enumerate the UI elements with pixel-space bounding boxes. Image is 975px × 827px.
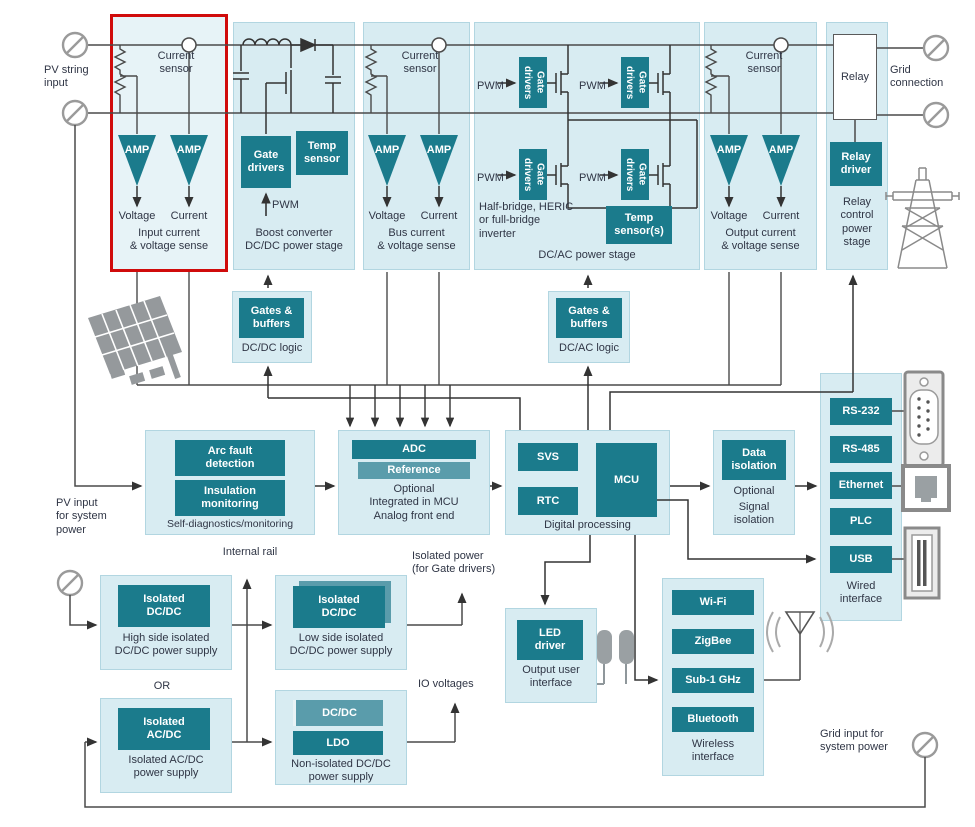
wifi-box: Wi-Fi <box>672 590 754 615</box>
pv-string-input-label: PV string input <box>44 64 104 91</box>
amp-label: AMP <box>769 144 793 156</box>
boost-temp-sensor-box: Temp sensor <box>296 131 348 175</box>
insulation-monitoring-box: Insulation monitoring <box>175 480 285 516</box>
io-voltages-label: IO voltages <box>418 678 494 691</box>
amp-label: AMP <box>125 144 149 156</box>
amp-label: AMP <box>375 144 399 156</box>
grid-connection-label: Grid connection <box>890 64 962 91</box>
led-driver-box: LED driver <box>517 620 583 660</box>
amp-output-arrows <box>137 186 781 206</box>
input-sense-caption: Input current & voltage sense <box>110 227 228 254</box>
afe-caption: Optional Integrated in MCU Analog front … <box>338 483 490 523</box>
ldo-box: LDO <box>293 731 383 755</box>
sense-signal-bus <box>137 272 781 385</box>
amp-label: AMP <box>427 144 451 156</box>
boost-circuit <box>233 39 341 134</box>
zigbee-box: ZigBee <box>672 629 754 654</box>
high-side-dcdc-box: Isolated DC/DC <box>118 585 210 627</box>
bluetooth-box: Bluetooth <box>672 707 754 732</box>
selfdiag-caption: Self-diagnostics/monitoring <box>145 518 315 531</box>
wireless-interface-caption: Wireless interface <box>662 738 764 765</box>
input-current-label: Current <box>162 210 216 223</box>
solar-panel-icon <box>88 296 182 385</box>
bus-sense-caption: Bus current & voltage sense <box>363 227 470 254</box>
svs-box: SVS <box>518 443 578 471</box>
usb-connector-icon <box>905 528 939 598</box>
wiring-layer: AMP AMP AMP AMP AMP AMP <box>0 0 975 827</box>
boost-pwm-label: PWM <box>272 199 306 212</box>
relay-driver-box: Relay driver <box>830 142 882 186</box>
dcdc-logic-caption: DC/DC logic <box>232 342 312 355</box>
bus-voltage-label: Voltage <box>360 210 414 223</box>
ethernet-connector-icon <box>903 466 949 510</box>
grid-system-power-note: Grid input for system power <box>820 728 916 755</box>
rs485-box: RS-485 <box>830 436 892 463</box>
dcac-temp-sensor-box: Temp sensor(s) <box>606 206 672 244</box>
boost-caption: Boost converter DC/DC power stage <box>233 227 355 254</box>
output-voltage-label: Voltage <box>702 210 756 223</box>
noniso-caption: Non-isolated DC/DC power supply <box>275 758 407 785</box>
boost-gate-drivers-box: Gate drivers <box>241 136 291 188</box>
internal-rail-label: Internal rail <box>205 546 295 559</box>
output-current-label: Current <box>754 210 808 223</box>
acdc-box: Isolated AC/DC <box>118 708 210 750</box>
dcac-gate-drivers-box: Gate drivers <box>519 149 547 200</box>
dcac-pwm-label: PWM <box>579 172 611 185</box>
low-side-dcdc-box: Isolated DC/DC <box>293 586 385 628</box>
rtc-box: RTC <box>518 487 578 515</box>
sub1ghz-box: Sub-1 GHz <box>672 668 754 693</box>
input-current-sensor-label: Current sensor <box>148 50 204 77</box>
dcac-gate-drivers-box: Gate drivers <box>621 149 649 200</box>
plc-box: PLC <box>830 508 892 535</box>
relay-stage-caption: Relay control power stage <box>826 196 888 250</box>
wired-interface-caption: Wired interface <box>820 580 902 607</box>
acdc-caption: Isolated AC/DC power supply <box>100 754 232 781</box>
dcac-gate-drivers-box: Gate drivers <box>519 57 547 108</box>
noniso-dcdc-box: DC/DC <box>293 700 383 726</box>
grid-tower-icon <box>886 168 959 268</box>
usb-box: USB <box>830 546 892 573</box>
ethernet-box: Ethernet <box>830 472 892 499</box>
inverter-type-note: Half-bridge, HERIC or full-bridge invert… <box>479 201 589 241</box>
relay-box: Relay <box>833 34 877 120</box>
dcac-pwm-label: PWM <box>477 172 509 185</box>
pv-system-power-note: PV input for system power <box>56 497 126 537</box>
led-icons <box>597 630 634 684</box>
dcac-caption: DC/AC power stage <box>474 249 700 262</box>
solar-inverter-block-diagram: AMP AMP AMP AMP AMP AMP <box>0 0 975 827</box>
amp-label: AMP <box>177 144 201 156</box>
adc-input-arrows <box>350 385 450 426</box>
bus-current-sensor-label: Current sensor <box>392 50 448 77</box>
amp-label: AMP <box>717 144 741 156</box>
output-ui-caption: Output user interface <box>505 664 597 691</box>
antenna-icon <box>764 612 833 680</box>
isolated-power-note: Isolated power (for Gate drivers) <box>412 550 532 577</box>
isolation-caption: Signal isolation <box>713 501 795 528</box>
bus-current-label: Current <box>412 210 466 223</box>
serial-connector-icon <box>905 372 943 466</box>
mcu-box: MCU <box>596 443 657 517</box>
output-sense-caption: Output current & voltage sense <box>704 227 817 254</box>
adc-box: ADC <box>352 440 476 459</box>
dcdc-gates-buffers-box: Gates & buffers <box>239 298 304 338</box>
rs232-box: RS-232 <box>830 398 892 425</box>
dcac-pwm-label: PWM <box>579 80 611 93</box>
isolation-note: Optional <box>713 485 795 498</box>
dcac-logic-caption: DC/AC logic <box>548 342 630 355</box>
dcac-gates-buffers-box: Gates & buffers <box>556 298 622 338</box>
dcac-pwm-label: PWM <box>477 80 509 93</box>
dcac-gate-drivers-box: Gate drivers <box>621 57 649 108</box>
or-label: OR <box>148 680 176 693</box>
input-voltage-label: Voltage <box>110 210 164 223</box>
low-side-caption: Low side isolated DC/DC power supply <box>275 632 407 659</box>
data-isolation-box: Data isolation <box>722 440 786 480</box>
output-current-sensor-label: Current sensor <box>736 50 792 77</box>
digital-caption: Digital processing <box>505 519 670 532</box>
reference-box: Reference <box>358 462 470 479</box>
high-side-caption: High side isolated DC/DC power supply <box>100 632 232 659</box>
arc-fault-box: Arc fault detection <box>175 440 285 476</box>
